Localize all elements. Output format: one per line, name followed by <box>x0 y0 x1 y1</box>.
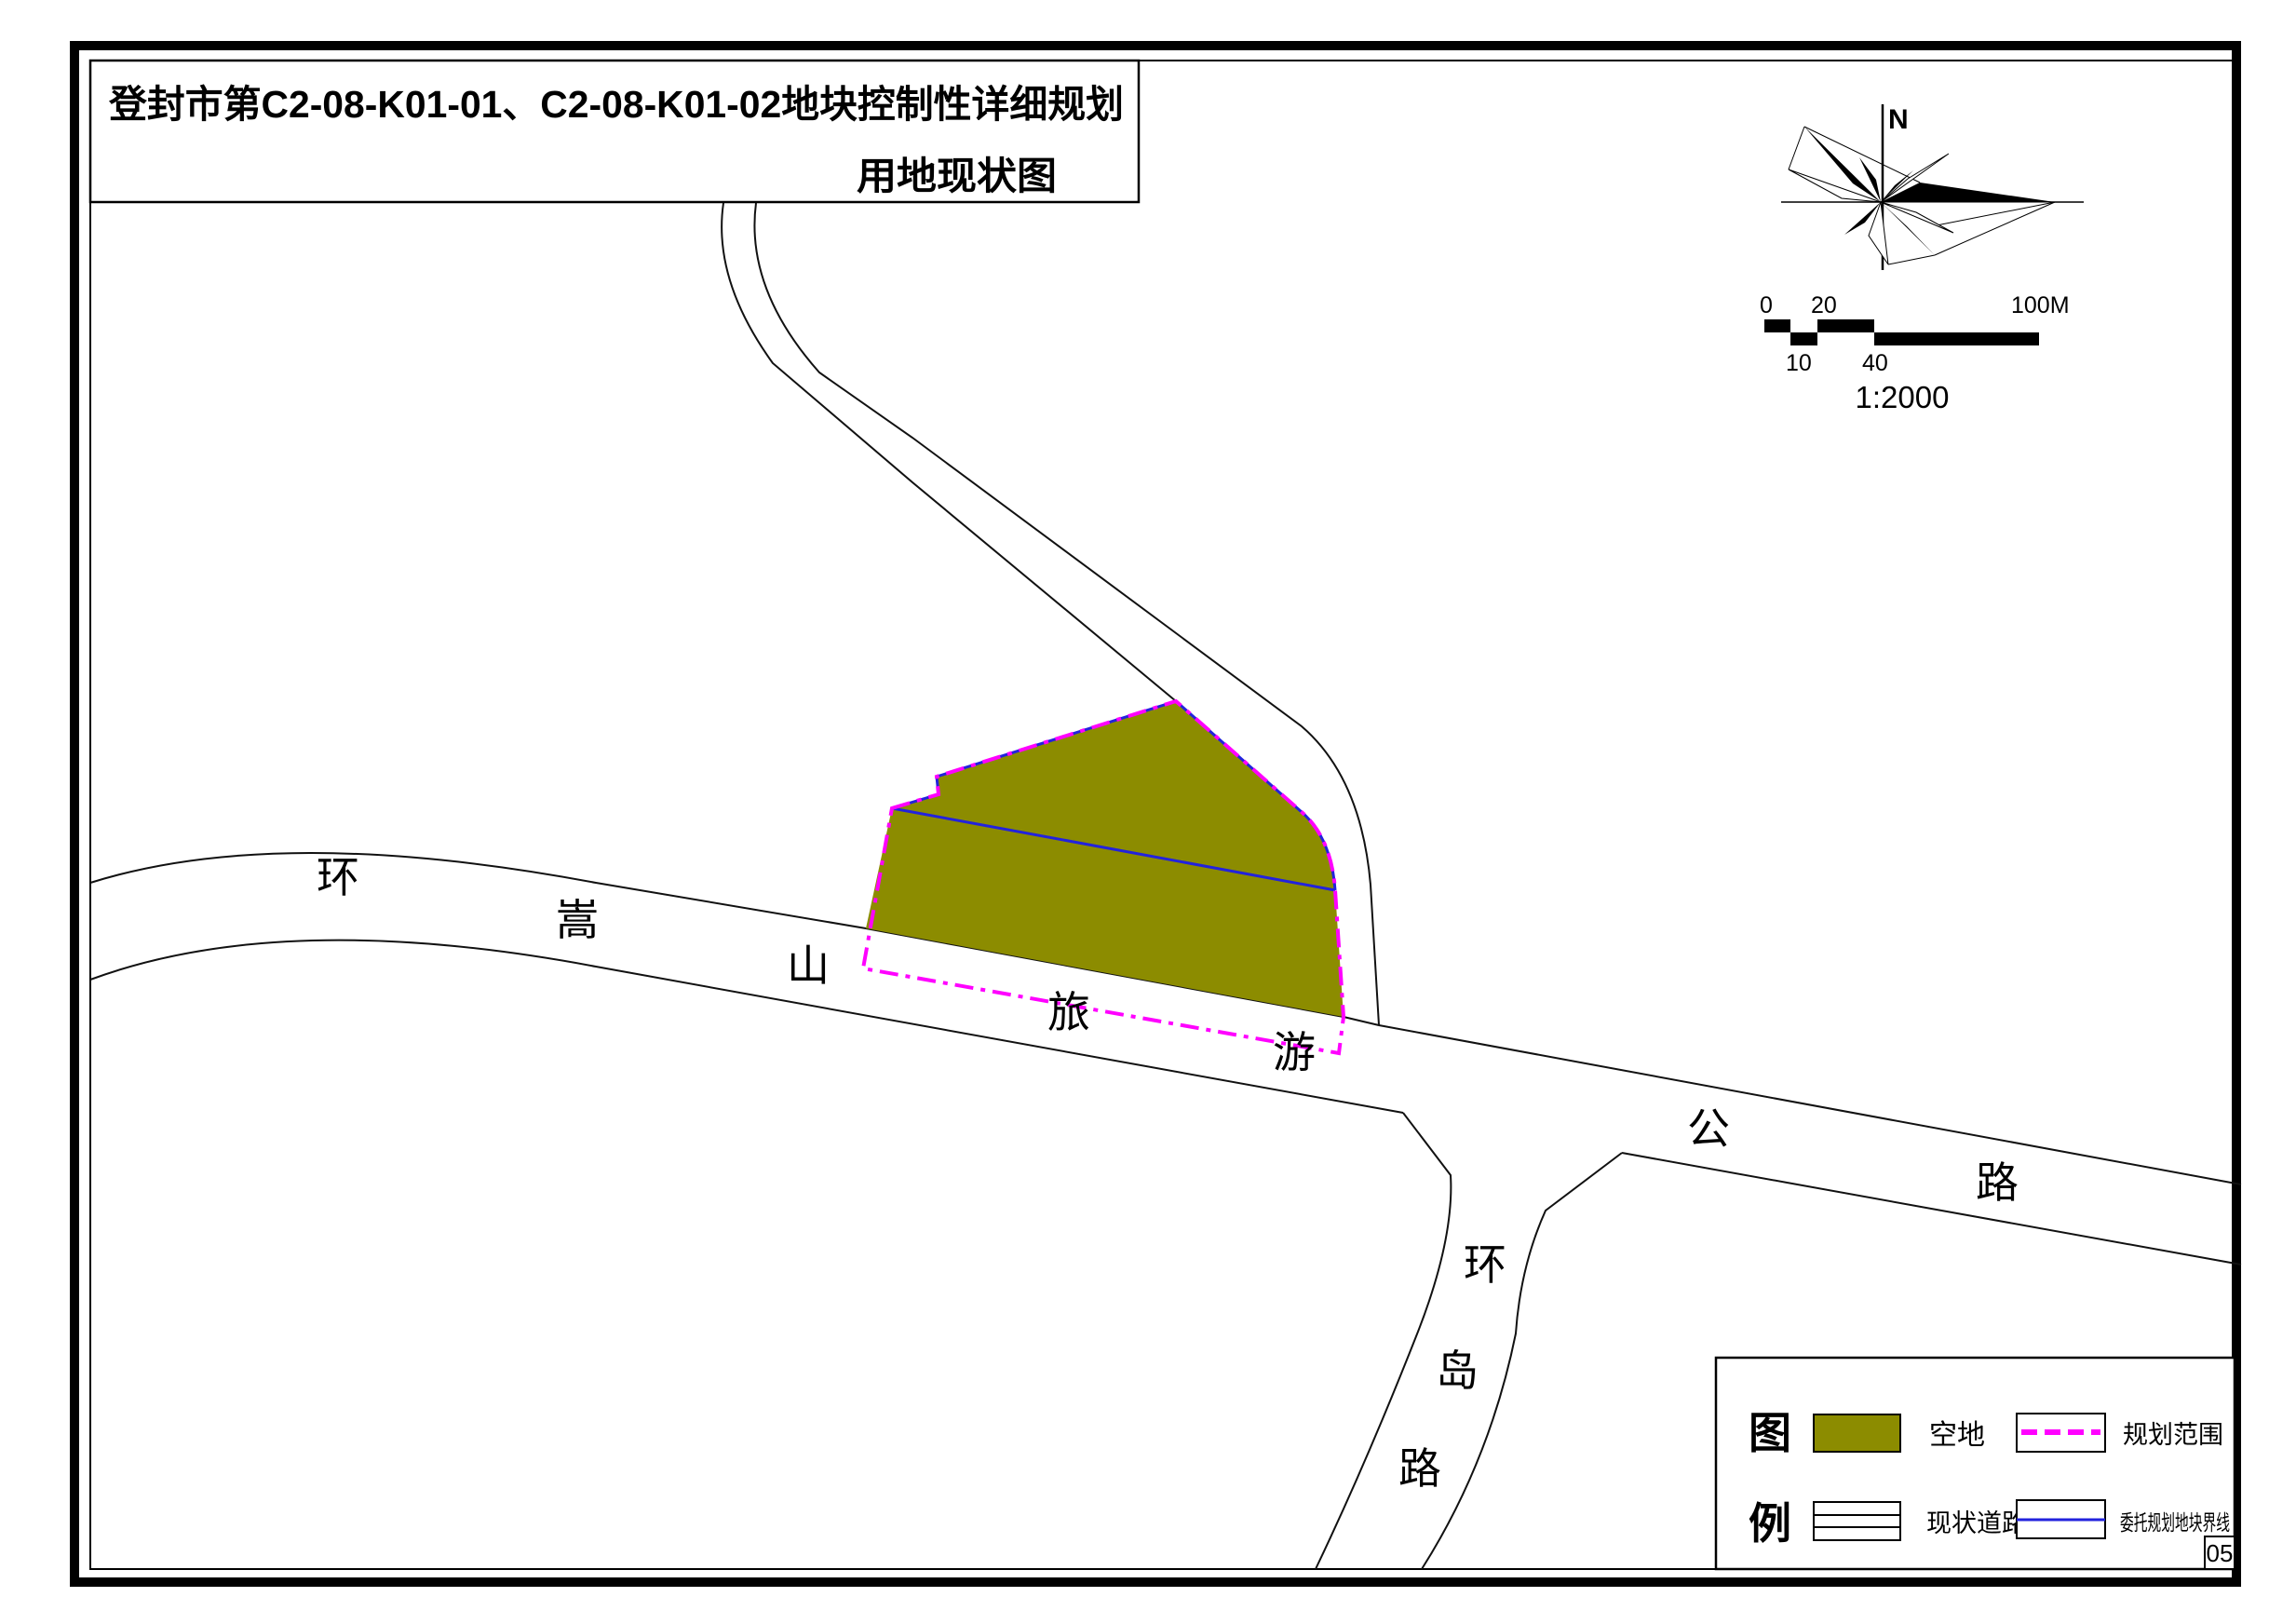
compass-rose: N <box>1781 104 2084 270</box>
vacant-land-plot <box>866 701 1344 1017</box>
legend-title-char1: 图 <box>1749 1409 1791 1457</box>
legend-label: 委托规划地块界线 <box>2120 1510 2230 1535</box>
legend-item-vacant-land: 空地 <box>1814 1414 1985 1452</box>
scale-tick-10: 10 <box>1786 350 1812 376</box>
scale-tick-20: 20 <box>1811 292 1837 318</box>
page-number: 05 <box>2207 1539 2234 1567</box>
scale-tick-0: 0 <box>1760 292 1773 318</box>
scale-bar: 0 20 100M 10 40 1:2000 <box>1760 292 2070 414</box>
legend: 图 例 空地 规划范围 现状道路 委托规划地块界线 <box>1716 1358 2235 1569</box>
scale-ratio: 1:2000 <box>1856 380 1950 414</box>
main-road-lower-edge-east <box>1622 1153 2241 1265</box>
road-char: 路 <box>1976 1158 2019 1207</box>
map-canvas: 环 嵩 山 旅 游 公 路 环 岛 路 登封市第C2-08-K01-01、C2-… <box>0 0 2296 1624</box>
drawing-title-line2: 用地现状图 <box>857 155 1057 197</box>
title-block: 登封市第C2-08-K01-01、C2-08-K01-02地块控制性详细规划 用… <box>90 61 1139 202</box>
road-char: 环 <box>1464 1240 1506 1289</box>
vacant-land-swatch <box>1814 1414 1900 1452</box>
scale-bar-blocks <box>1764 319 2039 345</box>
legend-label: 规划范围 <box>2123 1421 2223 1449</box>
road-char: 游 <box>1273 1028 1316 1076</box>
ring-island-road-left-edge <box>1316 1113 1451 1569</box>
drawing-title-line1: 登封市第C2-08-K01-01、C2-08-K01-02地块控制性详细规划 <box>108 83 1124 126</box>
legend-title-char2: 例 <box>1749 1499 1791 1548</box>
road-char: 山 <box>787 941 830 990</box>
ring-island-road-name: 环 岛 路 <box>1398 1240 1506 1493</box>
north-label: N <box>1888 104 1909 135</box>
road-char: 公 <box>1687 1104 1730 1153</box>
road-char: 嵩 <box>556 896 599 944</box>
scale-tick-100: 100M <box>2011 292 2070 318</box>
road-char: 旅 <box>1047 988 1090 1036</box>
road-char: 环 <box>317 853 359 901</box>
page-number-block: 05 <box>2205 1536 2235 1569</box>
legend-label: 现状道路 <box>1926 1509 2027 1537</box>
road-char: 岛 <box>1436 1347 1479 1395</box>
existing-road-swatch <box>1814 1502 1900 1540</box>
scale-tick-40: 40 <box>1862 350 1888 376</box>
road-char: 路 <box>1398 1444 1441 1493</box>
compass-white-points <box>1789 154 2055 264</box>
legend-label: 空地 <box>1929 1420 1985 1451</box>
plan-drawing-sheet: 环 嵩 山 旅 游 公 路 环 岛 路 登封市第C2-08-K01-01、C2-… <box>0 0 2296 1624</box>
north-road-left-edge <box>722 203 1176 701</box>
